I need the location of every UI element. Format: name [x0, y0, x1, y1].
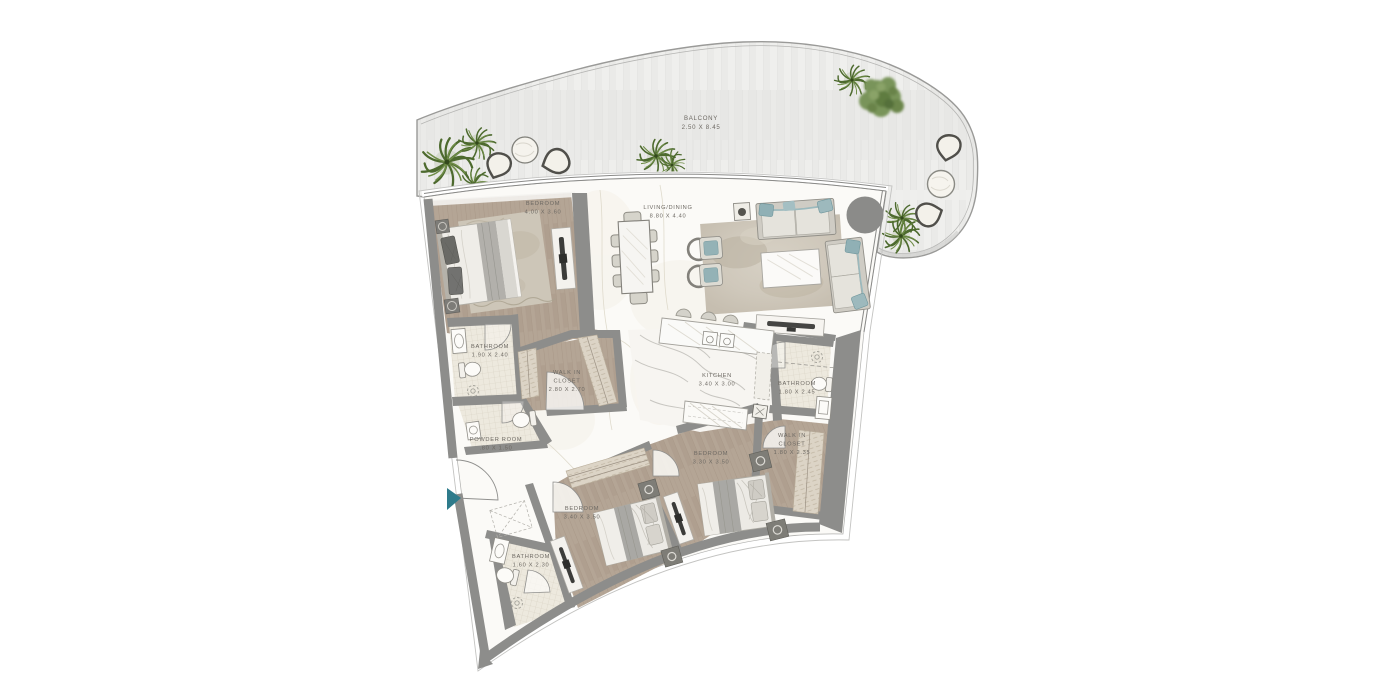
svg-text:2.50 X 8.45: 2.50 X 8.45	[682, 124, 721, 131]
svg-text:BATHROOM: BATHROOM	[512, 554, 550, 560]
svg-text:BATHROOM: BATHROOM	[471, 344, 509, 350]
svg-text:POWDER ROOM: POWDER ROOM	[470, 437, 523, 443]
svg-text:1.90 X 2.40: 1.90 X 2.40	[472, 353, 509, 359]
svg-text:3.40 X 3.50: 3.40 X 3.50	[564, 515, 601, 521]
svg-text:KITCHEN: KITCHEN	[702, 373, 732, 379]
svg-text:BEDROOM: BEDROOM	[694, 451, 728, 457]
svg-text:.80 X 1.50: .80 X 1.50	[480, 446, 513, 452]
svg-text:WALK IN: WALK IN	[553, 370, 581, 376]
svg-text:BEDROOM: BEDROOM	[526, 201, 560, 207]
svg-text:2.80 X 2.70: 2.80 X 2.70	[549, 387, 586, 393]
svg-text:CLOSET: CLOSET	[779, 442, 806, 448]
svg-text:1.80 X 2.35: 1.80 X 2.35	[774, 450, 811, 456]
svg-text:8.80 X 4.40: 8.80 X 4.40	[650, 214, 687, 220]
svg-text:CLOSET: CLOSET	[554, 379, 581, 385]
svg-text:3.40 X 3.00: 3.40 X 3.00	[699, 382, 736, 388]
svg-text:1.60 X 2.30: 1.60 X 2.30	[513, 563, 550, 569]
svg-text:3.30 X 3.50: 3.30 X 3.50	[693, 460, 730, 466]
svg-text:BEDROOM: BEDROOM	[565, 506, 599, 512]
svg-text:BATHROOM: BATHROOM	[778, 381, 816, 387]
svg-text:4.00 X 3.60: 4.00 X 3.60	[525, 210, 562, 216]
svg-text:1.80 X 2.45: 1.80 X 2.45	[779, 390, 816, 396]
svg-text:LIVING/DINING: LIVING/DINING	[643, 205, 692, 211]
svg-text:WALK IN: WALK IN	[778, 433, 806, 439]
svg-text:BALCONY: BALCONY	[684, 115, 718, 122]
